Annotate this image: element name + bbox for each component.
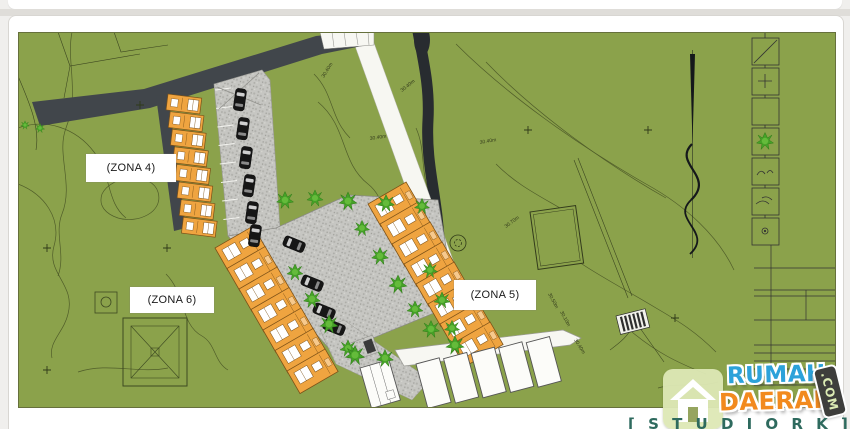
zona4-label: (ZONA 4): [86, 154, 176, 182]
zona6-label: (ZONA 6): [130, 287, 214, 313]
studio-caption: [ S T U D I O R K ]: [628, 415, 850, 429]
outlined-plot-rect: [530, 206, 584, 270]
zona4-label-text: (ZONA 4): [107, 162, 156, 174]
zona5-label-text: (ZONA 5): [471, 289, 520, 301]
site-plan-svg: 30.40m 30.40m 30.40m 30.70m 30.50m 30.10…: [18, 32, 836, 408]
site-plan-image: 30.40m 30.40m 30.40m 30.70m 30.50m 30.10…: [18, 32, 836, 408]
watermark-word-rumah: RUMAH: [727, 363, 826, 389]
previous-card-edge: [8, 0, 842, 9]
zona5-label: (ZONA 5): [454, 280, 536, 310]
page: 30.40m 30.40m 30.40m 30.70m 30.50m 30.10…: [0, 0, 850, 429]
watermark-word-daerah: DAERAH: [719, 387, 835, 414]
zona6-label-text: (ZONA 6): [148, 294, 197, 306]
